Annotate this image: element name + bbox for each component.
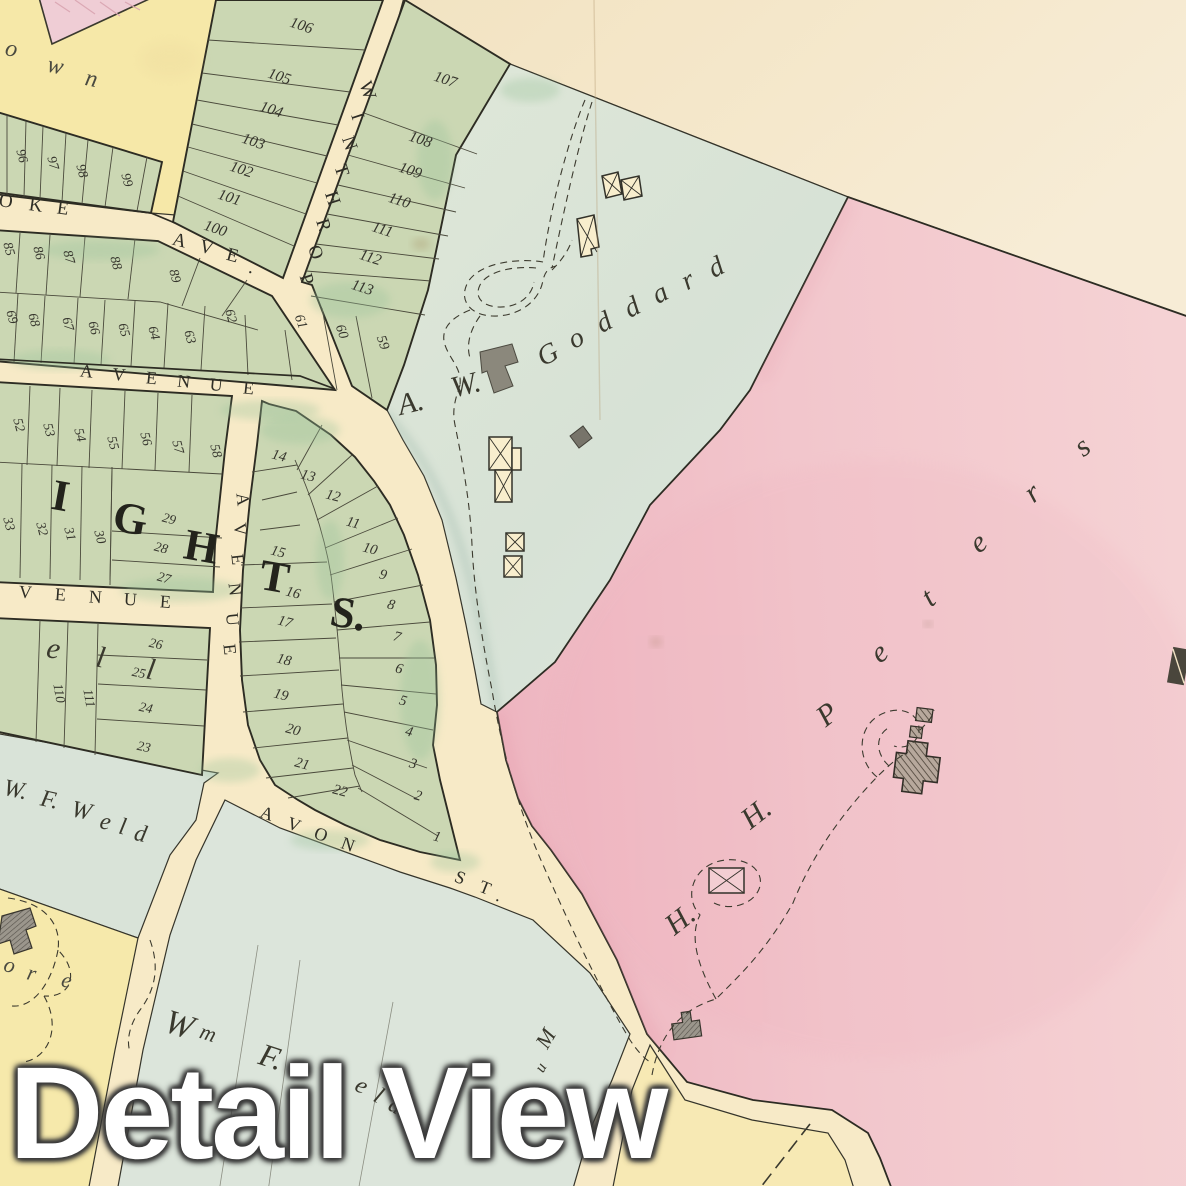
- svg-text:111: 111: [80, 688, 98, 709]
- svg-text:E: E: [145, 367, 158, 388]
- svg-text:A: A: [232, 492, 253, 507]
- svg-text:N: N: [225, 582, 246, 597]
- svg-text:V: V: [18, 582, 32, 603]
- svg-text:A: A: [79, 360, 94, 381]
- svg-text:V: V: [230, 522, 251, 537]
- svg-text:N: N: [88, 586, 102, 607]
- svg-text:E: E: [242, 378, 255, 399]
- svg-text:U: U: [209, 374, 224, 395]
- svg-text:U: U: [222, 612, 243, 627]
- svg-text:E: E: [159, 591, 171, 612]
- svg-text:V: V: [112, 364, 127, 385]
- svg-text:N: N: [176, 371, 191, 392]
- svg-text:E: E: [219, 643, 240, 656]
- svg-text:E: E: [54, 584, 66, 605]
- svg-text:E: E: [227, 553, 248, 566]
- svg-text:U: U: [123, 589, 137, 610]
